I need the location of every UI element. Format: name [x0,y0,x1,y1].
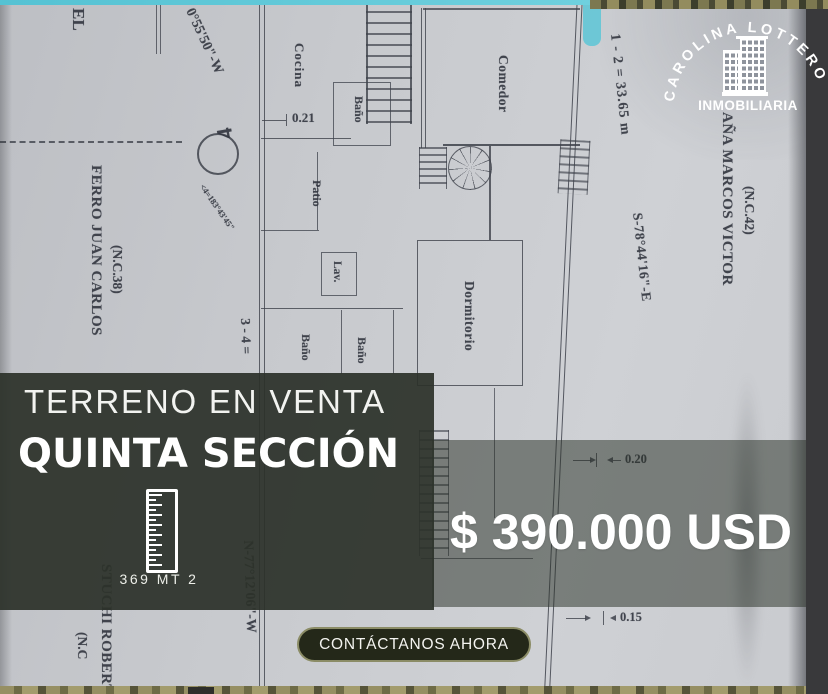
building-tower-right [740,38,766,92]
listing-headline: TERRENO EN VENTA [24,383,386,421]
bearing-1-2-label: S-78°44'16"-E [629,212,654,302]
contact-button[interactable]: CONTÁCTANOS AHORA [297,627,531,662]
wall-segment [261,230,319,231]
spiral-stair [448,146,492,190]
area-label: 369 MT 2 [89,571,229,587]
bottom-photo-strip [0,686,828,694]
bearing-top-left: 0°55'50"-W [181,6,225,77]
price-text: $ 390.000 USD [434,440,808,607]
neighbor-left-name: FERRO JUAN CARLOS [87,165,104,336]
neighbor-top-fragment: EL [68,8,88,31]
room-label-dormitorio: Dormitorio [461,281,477,351]
side-3-4-label: 3 - 4 = [237,318,254,354]
room-label-bano-top: Baño [351,96,366,123]
wall-segment [489,146,491,240]
wall-segment [156,0,161,54]
dimension-line [262,120,286,121]
dimension-arrow-icon [610,615,616,621]
dimension-line [566,618,586,619]
logo-subtitle: INMOBILIARIA [690,98,806,113]
room-label-patio: Patio [309,180,324,207]
building-base [722,92,768,96]
agency-logo: CAROLINA LOTTERO INMOBILIARIA [660,4,828,124]
info-panel: TERRENO EN VENTA QUINTA SECCIÓN 369 MT 2 [0,373,434,610]
neighbor-left-ref: (N.C.38) [109,245,125,294]
room-label-comedor: Comedor [495,55,511,113]
dimension-arrow-icon [585,615,591,621]
neighbor-right-ref: (N.C.42) [741,186,757,235]
wall-segment [423,8,580,10]
room-label-cocina: Cocina [291,43,307,88]
room-label-lav: Lav. [331,261,343,282]
wall-segment [261,308,403,309]
dimension-tick [286,114,287,126]
dashed-line [0,141,182,143]
bottom-dark-object [188,687,214,694]
ruler-ticks [149,494,175,568]
dimension-015: 0.15 [620,610,642,625]
vertex-number: 4 [211,126,239,141]
wall-segment [341,310,342,374]
building-tower-left [723,50,740,92]
side-1-2-label: 1 - 2 = 33.65 m [606,33,633,136]
dimension-021: 0.21 [292,110,315,126]
neighbor-right-name: AÑA MARCOS VICTOR [718,112,735,286]
vertex-angle-label: <4=183°43'45" [198,182,237,232]
ruler-icon [146,489,178,573]
wall-segment [421,8,426,148]
room-label-bano-mid: Baño [354,337,369,364]
vertex-marker: 4 [197,133,239,175]
stairs-boundary [558,139,591,194]
neighbor-bottom-ref: (N.C [74,632,90,659]
room-label-bano-left: Baño [298,334,313,361]
wall-segment [393,310,394,374]
real-estate-flyer: 4 <4=183°43'45" 0.21 0.20 0.15 Cocina Ba… [0,0,828,694]
stairs-side [419,147,447,189]
building-icon [722,38,768,96]
listing-location: QUINTA SECCIÓN [18,431,399,477]
dimension-tick [603,611,604,625]
top-teal-strip [0,0,592,5]
